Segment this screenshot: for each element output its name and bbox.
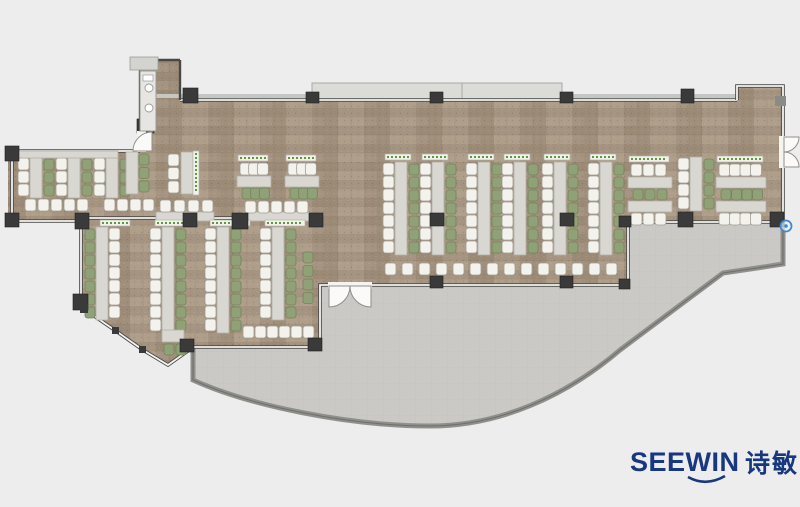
chair-green: [492, 203, 502, 214]
chair-white: [257, 163, 268, 175]
chair-green: [231, 268, 241, 279]
chair-white: [542, 163, 553, 175]
chair-green: [614, 177, 624, 188]
chair-green: [446, 190, 456, 201]
chair-white: [542, 202, 553, 214]
dining-table: [30, 157, 42, 198]
chair-white: [168, 168, 179, 180]
chair-white: [38, 199, 49, 211]
chair-green: [286, 268, 296, 279]
chair-white: [719, 213, 730, 225]
structural-column: [232, 213, 248, 229]
chair-white: [588, 215, 599, 227]
chair-green: [704, 185, 714, 196]
structural-column: [619, 279, 630, 289]
chair-white: [631, 213, 642, 225]
chair-white: [245, 201, 256, 213]
long-table-group: [18, 157, 54, 198]
chair-white: [77, 199, 88, 211]
chair-green: [657, 189, 667, 200]
chair-white: [303, 326, 314, 338]
chair-white: [588, 228, 599, 240]
chair-white: [730, 213, 741, 225]
chair-green: [286, 255, 296, 266]
chair-white: [420, 202, 431, 214]
chair-white: [383, 163, 394, 175]
chair-white: [383, 215, 394, 227]
dining-table: [690, 157, 702, 211]
chair-white: [487, 263, 498, 275]
chair-green: [303, 252, 313, 263]
chair-white: [420, 189, 431, 201]
chair-green: [492, 190, 502, 201]
chair-green: [492, 242, 502, 253]
chair-white: [631, 164, 642, 176]
chair-white: [542, 241, 553, 253]
chair-green: [286, 281, 296, 292]
chair-white: [18, 184, 29, 196]
chair-white: [64, 199, 75, 211]
chair-white: [260, 280, 271, 292]
chair-white: [117, 199, 128, 211]
chair-white: [453, 263, 464, 275]
chair-green: [303, 293, 313, 304]
chair-white: [383, 189, 394, 201]
chair-white: [160, 200, 171, 212]
chair-white: [94, 171, 105, 183]
chair-white: [205, 319, 216, 331]
floorplan-svg: [0, 0, 800, 507]
chair-green: [139, 168, 149, 179]
chair-white: [502, 176, 513, 188]
chair-green: [286, 294, 296, 305]
chair-white: [385, 263, 396, 275]
dining-table: [18, 151, 118, 158]
chair-white: [202, 200, 213, 212]
chair-green: [85, 255, 95, 266]
chair-white: [56, 158, 67, 170]
chair-white: [383, 176, 394, 188]
chair-white: [436, 263, 447, 275]
chair-white: [606, 263, 617, 275]
chair-white: [751, 164, 762, 176]
structural-column: [678, 212, 693, 227]
chair-white: [402, 263, 413, 275]
chair-white: [678, 171, 689, 183]
chair-white: [143, 199, 154, 211]
chair-white: [588, 241, 599, 253]
dining-table: [162, 227, 174, 333]
chair-white: [542, 228, 553, 240]
chair-white: [420, 241, 431, 253]
chair-white: [243, 326, 254, 338]
chair-white: [502, 215, 513, 227]
chair-green: [492, 216, 502, 227]
chair-green: [492, 164, 502, 175]
chair-white: [589, 263, 600, 275]
structural-column: [5, 213, 19, 227]
chair-white: [588, 176, 599, 188]
chair-green: [528, 177, 538, 188]
structural-column: [619, 216, 631, 227]
long-table-group: [420, 154, 456, 255]
chair-white: [542, 215, 553, 227]
chair-white: [109, 280, 120, 292]
chair-green: [409, 216, 419, 227]
chair-green: [704, 172, 714, 183]
chair-white: [205, 228, 216, 240]
banquette-group: [716, 156, 766, 225]
chair-white: [205, 267, 216, 279]
service-counter: [130, 57, 158, 131]
structural-column: [306, 92, 319, 103]
chair-white: [168, 181, 179, 193]
chair-green: [176, 320, 186, 331]
chair-white: [542, 189, 553, 201]
chair-green: [614, 229, 624, 240]
chair-white: [109, 228, 120, 240]
chair-white: [740, 213, 751, 225]
chair-white: [420, 163, 431, 175]
chair-white: [260, 254, 271, 266]
structural-column: [75, 213, 89, 229]
chair-green: [568, 229, 578, 240]
chair-white: [260, 241, 271, 253]
dining-table: [478, 162, 490, 255]
chair-green: [307, 188, 317, 199]
chair-green: [409, 203, 419, 214]
chair-green: [303, 279, 313, 290]
chair-green: [176, 229, 186, 240]
dining-table: [514, 162, 526, 255]
chair-green: [409, 242, 419, 253]
chair-white: [255, 326, 266, 338]
chair-green: [568, 242, 578, 253]
door-swing: [784, 137, 799, 152]
chair-green: [568, 164, 578, 175]
chair-green: [753, 189, 763, 200]
chair-green: [82, 185, 92, 196]
chair-white: [466, 189, 477, 201]
chair-white: [188, 200, 199, 212]
chair-white: [740, 164, 751, 176]
chair-white: [150, 306, 161, 318]
chair-white: [260, 293, 271, 305]
chair-green: [704, 198, 714, 209]
chair-white: [466, 202, 477, 214]
chair-green: [446, 203, 456, 214]
logo-cjk-text: 诗敏: [745, 449, 799, 478]
chair-white: [420, 215, 431, 227]
chair-white: [205, 254, 216, 266]
chair-green: [44, 185, 54, 196]
chair-white: [305, 163, 316, 175]
structural-column: [183, 213, 197, 227]
chair-green: [85, 281, 95, 292]
dining-table: [628, 201, 672, 212]
chair-green: [231, 255, 241, 266]
chair-white: [258, 201, 269, 213]
chair-white: [502, 241, 513, 253]
chair-green: [492, 177, 502, 188]
chair-white: [502, 189, 513, 201]
chair-green: [704, 159, 714, 170]
chair-white: [205, 306, 216, 318]
chair-green: [446, 216, 456, 227]
chair-white: [643, 213, 654, 225]
chair-white: [383, 241, 394, 253]
chair-green: [528, 203, 538, 214]
chair-white: [572, 263, 583, 275]
long-table-group: [502, 154, 538, 255]
canopy: [150, 83, 738, 99]
chair-green: [614, 242, 624, 253]
chair-white: [538, 263, 549, 275]
chair-green: [231, 281, 241, 292]
structural-column: [308, 338, 322, 351]
structural-column: [560, 92, 573, 103]
chair-green: [82, 159, 92, 170]
chair-white: [643, 164, 654, 176]
chair-white: [383, 202, 394, 214]
chair-white: [284, 201, 295, 213]
chair-white: [205, 280, 216, 292]
chair-green: [568, 190, 578, 201]
banquette-group: [628, 156, 672, 225]
chair-green: [286, 229, 296, 240]
chair-green: [446, 164, 456, 175]
long-table-group: [56, 157, 92, 198]
chair-green: [446, 242, 456, 253]
chair-white: [260, 306, 271, 318]
chair-white: [291, 326, 302, 338]
chair-green: [176, 242, 186, 253]
chair-green: [645, 189, 655, 200]
chair-white: [150, 293, 161, 305]
chair-green: [446, 229, 456, 240]
chair-green: [614, 164, 624, 175]
facade-node: [112, 327, 119, 334]
chair-white: [678, 158, 689, 170]
chair-white: [205, 241, 216, 253]
dining-table: [432, 162, 444, 255]
chair-white: [470, 263, 481, 275]
chair-white: [18, 158, 29, 170]
hotspot: [781, 221, 792, 232]
chair-white: [588, 202, 599, 214]
chair-white: [655, 164, 666, 176]
chair-white: [466, 228, 477, 240]
chair-green: [409, 164, 419, 175]
chair-white: [655, 213, 666, 225]
chair-white: [383, 228, 394, 240]
chair-white: [109, 306, 120, 318]
chair-white: [25, 199, 36, 211]
dining-table: [106, 157, 118, 198]
chair-white: [542, 176, 553, 188]
chair-green: [231, 320, 241, 331]
chair-green: [742, 189, 752, 200]
chair-white: [419, 263, 430, 275]
dining-table: [181, 152, 193, 194]
chair-green: [528, 190, 538, 201]
chair-white: [18, 171, 29, 183]
structural-column: [430, 92, 443, 103]
chair-white: [730, 164, 741, 176]
chair-white: [109, 293, 120, 305]
chair-white: [150, 241, 161, 253]
facade-node: [80, 305, 88, 313]
chair-white: [466, 163, 477, 175]
chair-green: [721, 189, 731, 200]
chair-white: [502, 228, 513, 240]
logo-latin-text: SEEWIN: [630, 447, 740, 477]
chair-white: [109, 267, 120, 279]
long-table-group: [588, 154, 624, 255]
chair-green: [732, 189, 742, 200]
chair-green: [614, 203, 624, 214]
structural-column: [183, 88, 198, 103]
chair-green: [85, 268, 95, 279]
wall-stub: [130, 57, 158, 70]
chair-white: [719, 164, 730, 176]
chair-white: [260, 228, 271, 240]
chair-green: [44, 159, 54, 170]
chair-green: [139, 154, 149, 165]
dining-table: [628, 177, 672, 188]
chair-white: [588, 163, 599, 175]
chair-green: [259, 188, 269, 199]
chair-green: [303, 266, 313, 277]
chair-green: [286, 307, 296, 318]
chair-green: [633, 189, 643, 200]
chair-white: [502, 202, 513, 214]
chair-green: [176, 255, 186, 266]
chair-white: [420, 228, 431, 240]
chair-green: [231, 229, 241, 240]
door-swing: [784, 152, 799, 167]
chair-green: [409, 190, 419, 201]
dining-table: [272, 227, 284, 320]
chair-green: [82, 172, 92, 183]
chair-white: [504, 263, 515, 275]
chair-green: [231, 242, 241, 253]
chair-green: [568, 203, 578, 214]
exterior-ledge: [562, 94, 738, 98]
chair-white: [150, 228, 161, 240]
chair-green: [528, 242, 538, 253]
dining-table: [237, 176, 271, 187]
dining-table: [600, 162, 612, 255]
long-table-group: [542, 154, 578, 255]
chair-white: [174, 200, 185, 212]
chair-green: [164, 344, 174, 355]
chair-white: [205, 293, 216, 305]
chair-green: [446, 177, 456, 188]
chair-white: [267, 326, 278, 338]
chair-white: [150, 267, 161, 279]
chair-green: [568, 177, 578, 188]
chair-white: [502, 163, 513, 175]
chair-green: [176, 294, 186, 305]
chair-green: [528, 229, 538, 240]
counter-fixture: [145, 104, 153, 112]
chair-white: [51, 199, 62, 211]
chair-white: [150, 280, 161, 292]
chair-white: [94, 158, 105, 170]
chair-green: [231, 307, 241, 318]
structural-column: [560, 276, 573, 288]
chair-green: [85, 229, 95, 240]
dining-table: [126, 152, 138, 194]
structural-column: [560, 213, 574, 226]
chair-white: [751, 213, 762, 225]
chair-white: [297, 201, 308, 213]
facade-node: [139, 346, 146, 353]
structural-column: [430, 213, 444, 226]
chair-green: [409, 229, 419, 240]
chair-white: [555, 263, 566, 275]
chair-white: [94, 184, 105, 196]
chair-white: [521, 263, 532, 275]
chair-white: [271, 201, 282, 213]
chair-green: [492, 229, 502, 240]
dining-table: [395, 162, 407, 255]
corner-marker: [775, 96, 786, 106]
chair-green: [231, 294, 241, 305]
chair-white: [130, 199, 141, 211]
chair-green: [176, 281, 186, 292]
chair-white: [150, 319, 161, 331]
chair-white: [56, 184, 67, 196]
long-table-group: [94, 157, 130, 198]
structural-column: [5, 146, 19, 161]
seewin-logo: SEEWIN 诗敏: [628, 444, 800, 488]
chair-white: [150, 254, 161, 266]
chair-white: [260, 267, 271, 279]
chair-white: [109, 241, 120, 253]
door-swing: [133, 132, 152, 151]
exterior-ledge: [150, 94, 312, 98]
chair-green: [176, 307, 186, 318]
dining-table: [716, 177, 766, 188]
chair-green: [44, 172, 54, 183]
chair-white: [104, 199, 115, 211]
counter-fixture: [145, 84, 153, 92]
chair-white: [168, 154, 179, 166]
structural-column: [180, 339, 194, 352]
dining-table: [217, 227, 229, 333]
dining-table: [716, 201, 766, 212]
chair-white: [466, 241, 477, 253]
structural-column: [681, 89, 694, 103]
chair-green: [409, 177, 419, 188]
structural-column: [309, 213, 323, 227]
chair-green: [528, 216, 538, 227]
chair-white: [678, 184, 689, 196]
dining-table: [285, 176, 319, 187]
chair-white: [109, 254, 120, 266]
long-table-group: [383, 154, 419, 255]
chair-green: [176, 268, 186, 279]
chair-green: [139, 181, 149, 192]
dining-table: [554, 162, 566, 255]
chair-white: [588, 189, 599, 201]
floorplan-canvas: SEEWIN 诗敏: [0, 0, 800, 507]
chair-white: [56, 171, 67, 183]
chair-white: [466, 215, 477, 227]
structural-column: [430, 276, 443, 288]
